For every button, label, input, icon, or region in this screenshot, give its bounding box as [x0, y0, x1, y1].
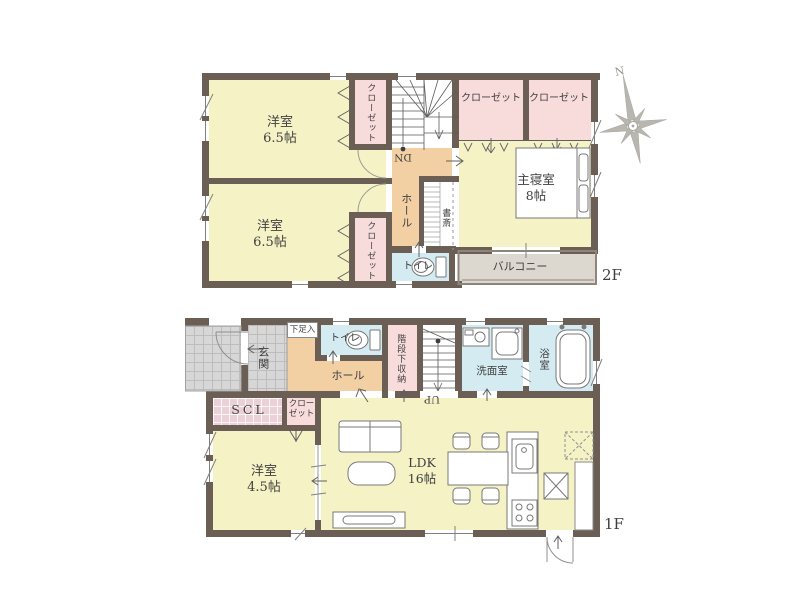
label-2f-closet-c: クローゼット: [527, 93, 591, 106]
pantry-space: [565, 432, 593, 459]
label-1f-bedroom: 洋室 4.5帖: [216, 464, 312, 497]
label-2f-balcony: バルコニー: [468, 260, 572, 274]
label-2f-closet-b: クローゼット: [459, 93, 523, 106]
room-size: 4.5帖: [247, 480, 281, 495]
closet-label-line1: クロー: [289, 399, 315, 409]
label-2f-master-bedroom: 主寝室 8帖: [492, 172, 580, 203]
label-2f-floor: 2F: [602, 266, 622, 285]
kitchen-counter: [507, 432, 538, 529]
stairs-1f: [423, 329, 455, 391]
label-1f-closet: クロー ゼット: [287, 399, 316, 419]
washbasin: [492, 328, 522, 359]
back-door: [546, 530, 573, 563]
refrigerator: [544, 473, 568, 499]
room-size: 16帖: [408, 471, 436, 486]
room-name: 洋室: [251, 464, 277, 479]
label-2f-closet-a: クローゼット: [364, 83, 375, 143]
room-name: LDK: [408, 455, 436, 470]
label-2f-stairs-dn: DN: [390, 150, 416, 163]
label-1f-ldk: LDK 16帖: [398, 455, 446, 486]
sofa: [339, 421, 401, 452]
stairs-2f: [392, 80, 459, 151]
label-1f-floor: 1F: [604, 515, 624, 534]
label-2f-toilet: トイレ: [396, 261, 440, 274]
porch-outline: [186, 325, 288, 391]
floorplan-page: 洋室 6.5帖 洋室 6.5帖 クローゼット クローゼット クローゼット クロー…: [0, 0, 800, 600]
label-2f-hall: ホール: [399, 183, 413, 239]
label-1f-under-stair-storage: 階段下収納: [394, 327, 405, 391]
label-1f-washroom: 洗面室: [461, 365, 523, 378]
tv-board: [333, 512, 405, 528]
label-2f-study: 書斎: [439, 198, 450, 238]
label-1f-bathroom: 浴室: [537, 341, 550, 377]
dining-set: [448, 433, 508, 504]
label-2f-closet-d: クローゼット: [364, 221, 375, 281]
room-name: 主寝室: [517, 172, 555, 187]
closet-label-line2: ゼット: [289, 409, 315, 419]
label-1f-stairs-up: UP: [419, 392, 445, 405]
room-size: 6.5帖: [253, 235, 287, 250]
cupboard: [575, 462, 593, 530]
washing-machine: [463, 328, 489, 346]
label-1f-scl: SCL: [223, 402, 275, 418]
label-1f-shoe-cabinet: 下足入: [287, 325, 318, 336]
label-2f-bedroom-b: 洋室 6.5帖: [225, 219, 315, 252]
bathtub: [556, 325, 590, 388]
label-compass-north: N: [614, 64, 626, 79]
floorplan-lineart: [0, 0, 800, 600]
label-1f-toilet: トイレ: [323, 333, 367, 346]
room-size: 8帖: [526, 188, 546, 203]
coffee-table: [348, 462, 395, 485]
room-name: 洋室: [257, 219, 283, 234]
room-name: 洋室: [267, 115, 293, 130]
label-1f-entrance: 玄関: [256, 338, 270, 378]
room-size: 6.5帖: [263, 131, 297, 146]
label-2f-bedroom-a: 洋室 6.5帖: [235, 115, 325, 148]
label-1f-hall: ホール: [316, 369, 380, 383]
compass-icon: [590, 68, 674, 169]
